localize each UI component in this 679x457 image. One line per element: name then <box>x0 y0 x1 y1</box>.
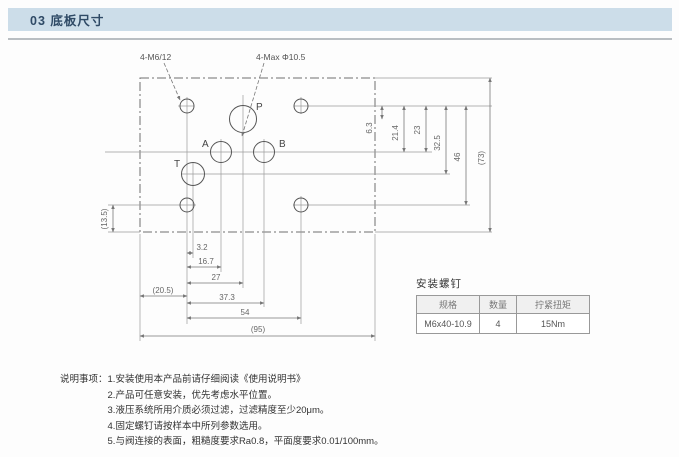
dim-16-7: 16.7 <box>198 257 214 266</box>
dim-27: 27 <box>212 273 221 282</box>
screw-col-qty: 数量 <box>480 296 517 314</box>
callout-leaders <box>164 63 264 136</box>
screw-table-data-row: M6x40-10.9 4 15Nm <box>417 314 590 334</box>
screw-torque-value: 15Nm <box>517 314 590 334</box>
dim-23: 23 <box>413 125 422 134</box>
right-dimension-lines <box>382 78 490 232</box>
note-item-3: 3.液压系统所用介质必须过滤，过滤精度至少20μm。 <box>108 403 384 419</box>
dim-54: 54 <box>241 308 250 317</box>
notes-section: 说明事项： 1.安装使用本产品前请仔细阅读《使用说明书》 2.产品可任意安装，优… <box>60 372 384 450</box>
port-a-label: A <box>202 139 209 150</box>
screw-spec-value: M6x40-10.9 <box>417 314 480 334</box>
screw-table-header-row: 规格 数量 拧紧扭矩 <box>417 296 590 314</box>
note-item-5: 5.与阀连接的表面，粗糙度要求Ra0.8，平面度要求0.01/100mm。 <box>108 434 384 450</box>
callout-max-ports: 4-Max Φ10.5 <box>256 52 306 62</box>
dim-46: 46 <box>453 152 462 161</box>
dim-21-4: 21.4 <box>391 125 400 141</box>
notes-list: 1.安装使用本产品前请仔细阅读《使用说明书》 2.产品可任意安装，优先考虑水平位… <box>108 372 384 450</box>
screw-col-torque: 拧紧扭矩 <box>517 296 590 314</box>
dim-20-5: (20.5) <box>153 286 174 295</box>
dim-3-2: 3.2 <box>196 243 208 252</box>
note-item-1: 1.安装使用本产品前请仔细阅读《使用说明书》 <box>108 372 384 388</box>
right-dimension-labels: 6.3 21.4 23 32.5 46 (73) <box>365 122 486 165</box>
screw-table-title: 安装螺钉 <box>416 276 590 291</box>
dim-37-3: 37.3 <box>219 293 235 302</box>
dim-95: (95) <box>251 325 266 334</box>
note-item-2: 2.产品可任意安装，优先考虑水平位置。 <box>108 388 384 404</box>
bottom-dimension-lines <box>140 253 375 336</box>
dim-73: (73) <box>477 151 486 166</box>
callout-mounting-holes: 4-M6/12 <box>140 52 171 62</box>
notes-label: 说明事项： <box>60 372 108 450</box>
port-b-label: B <box>279 139 286 150</box>
port-t-label: T <box>174 159 180 170</box>
screw-qty-value: 4 <box>480 314 517 334</box>
port-p-label: P <box>256 102 263 113</box>
mounting-screw-section: 安装螺钉 规格 数量 拧紧扭矩 M6x40-10.9 4 15Nm <box>416 276 590 334</box>
note-item-4: 4.固定螺钉请按样本中所列参数选用。 <box>108 419 384 435</box>
holes <box>180 99 308 212</box>
bottom-dimension-labels: 3.2 16.7 27 (20.5) 37.3 54 (95) <box>153 243 266 334</box>
catalog-page: 03 底板尺寸 <box>0 0 679 457</box>
screw-table: 规格 数量 拧紧扭矩 M6x40-10.9 4 15Nm <box>416 295 590 334</box>
dim-13-5: (13.5) <box>100 208 109 229</box>
dim-6-3: 6.3 <box>365 122 374 134</box>
screw-col-spec: 规格 <box>417 296 480 314</box>
dim-32-5: 32.5 <box>433 135 442 151</box>
